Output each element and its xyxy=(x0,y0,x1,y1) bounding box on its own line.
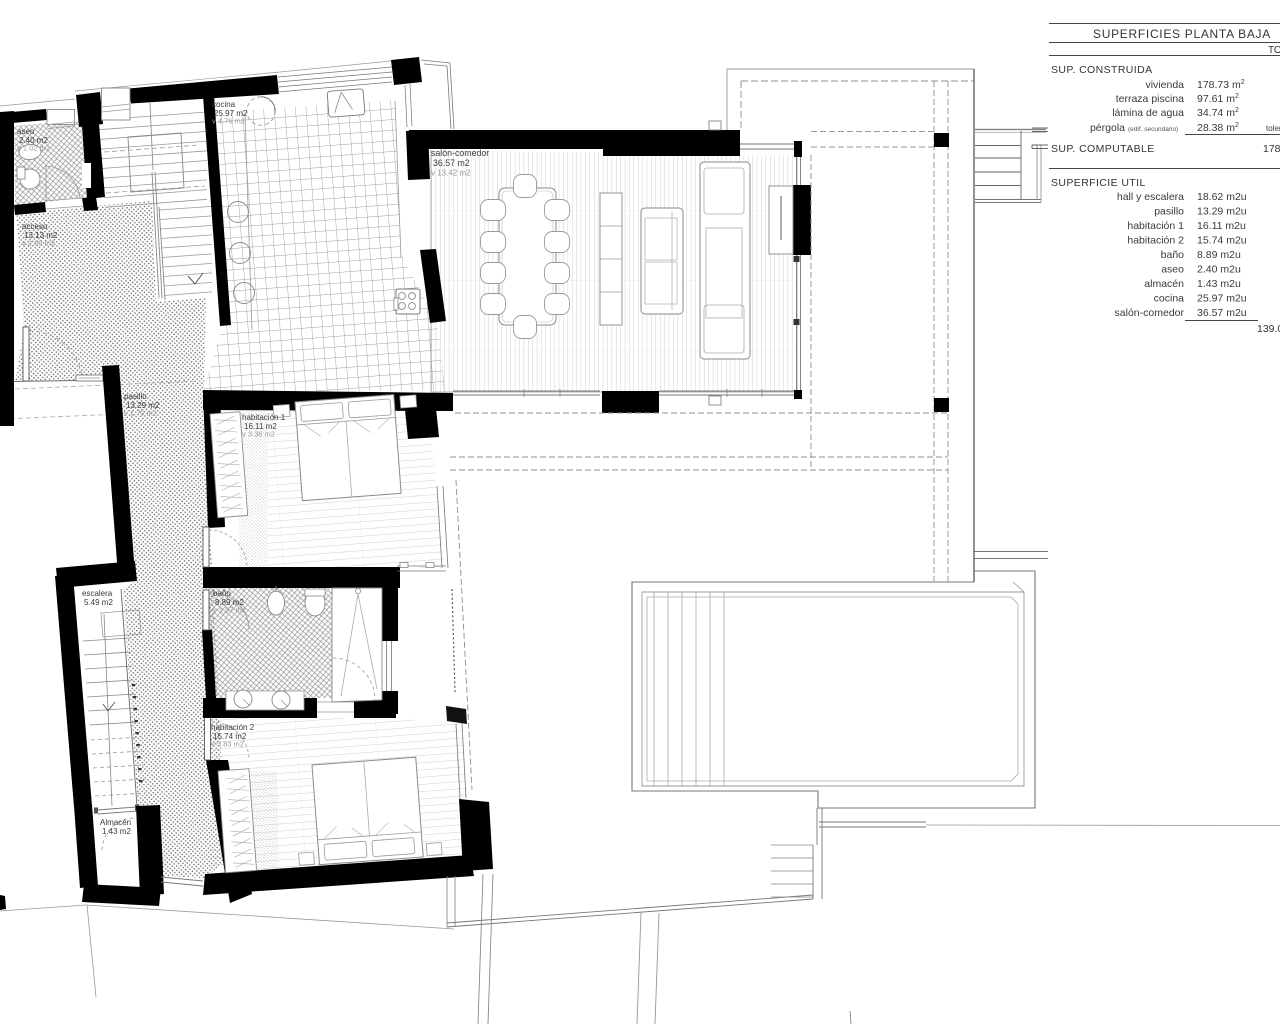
svg-text:178.73 m2: 178.73 m2 xyxy=(1197,79,1245,91)
svg-text:Almacén: Almacén xyxy=(100,818,131,827)
svg-text:salón-comedor: salón-comedor xyxy=(431,148,489,158)
svg-text:pérgola: pérgola xyxy=(1090,122,1125,134)
svg-text:v 13.42 m2: v 13.42 m2 xyxy=(431,169,471,178)
svg-text:salón-comedor: salón-comedor xyxy=(1115,307,1185,319)
svg-text:(edif. secundario): (edif. secundario) xyxy=(1128,126,1178,133)
svg-text:139.0: 139.0 xyxy=(1257,323,1280,335)
svg-text:28.38 m2: 28.38 m2 xyxy=(1197,122,1239,134)
svg-text:acceso: acceso xyxy=(22,222,48,231)
svg-text:pasillo: pasillo xyxy=(1154,206,1184,218)
svg-text:v 2.89 m2: v 2.89 m2 xyxy=(22,239,55,248)
svg-text:vivienda: vivienda xyxy=(1145,79,1184,91)
svg-text:34.74 m2: 34.74 m2 xyxy=(1197,107,1239,119)
svg-text:v 1.02 m2: v 1.02 m2 xyxy=(17,144,50,153)
svg-text:aseo: aseo xyxy=(1161,264,1184,276)
svg-text:97.61 m2: 97.61 m2 xyxy=(1197,93,1239,105)
svg-text:baño: baño xyxy=(1161,249,1185,261)
svg-text:25.97 m2u: 25.97 m2u xyxy=(1197,293,1247,305)
svg-text:habitación 1: habitación 1 xyxy=(242,413,286,422)
svg-text:pasillo: pasillo xyxy=(124,392,147,401)
svg-text:terraza piscina: terraza piscina xyxy=(1116,93,1184,105)
svg-text:habitación 1: habitación 1 xyxy=(1127,220,1184,232)
svg-text:SUP. CONSTRUIDA: SUP. CONSTRUIDA xyxy=(1051,64,1153,76)
svg-text:toler: toler xyxy=(1266,124,1280,133)
svg-text:v 1.70 m2: v 1.70 m2 xyxy=(124,409,157,418)
svg-text:v 3.36 m2: v 3.36 m2 xyxy=(242,430,275,439)
svg-text:SUPERFICIES PLANTA BAJA: SUPERFICIES PLANTA BAJA xyxy=(1093,27,1271,41)
svg-text:v 1.57 m2: v 1.57 m2 xyxy=(213,606,246,615)
svg-text:v 4.76 m2: v 4.76 m2 xyxy=(212,117,245,126)
svg-text:36.57 m2: 36.57 m2 xyxy=(433,158,470,168)
svg-text:hall y escalera: hall y escalera xyxy=(1117,191,1184,203)
svg-text:cocina: cocina xyxy=(1154,293,1185,305)
svg-text:18.62 m2u: 18.62 m2u xyxy=(1197,191,1247,203)
svg-text:SUPERFICIE UTIL: SUPERFICIE UTIL xyxy=(1051,177,1146,189)
svg-text:escalera: escalera xyxy=(82,589,113,598)
svg-text:2.40 m2u: 2.40 m2u xyxy=(1197,264,1241,276)
svg-text:almacén: almacén xyxy=(1144,278,1184,290)
svg-text:5.49 m2: 5.49 m2 xyxy=(84,598,113,607)
svg-text:8.89 m2u: 8.89 m2u xyxy=(1197,249,1241,261)
svg-text:habitación 2: habitación 2 xyxy=(1127,235,1184,247)
svg-text:aseo: aseo xyxy=(17,127,35,136)
svg-text:SUP. COMPUTABLE: SUP. COMPUTABLE xyxy=(1051,143,1155,155)
svg-text:TOTAL: TOTAL xyxy=(1268,45,1280,56)
svg-text:16.11 m2u: 16.11 m2u xyxy=(1197,220,1246,232)
svg-text:13.29 m2u: 13.29 m2u xyxy=(1197,206,1247,218)
svg-text:15.74 m2u: 15.74 m2u xyxy=(1197,235,1247,247)
svg-text:36.57 m2u: 36.57 m2u xyxy=(1197,307,1247,319)
svg-text:v 3.83 m2: v 3.83 m2 xyxy=(211,740,244,749)
svg-text:178.7: 178.7 xyxy=(1263,143,1280,155)
svg-text:1.43 m2u: 1.43 m2u xyxy=(1197,278,1241,290)
svg-text:1.43 m2: 1.43 m2 xyxy=(102,827,131,836)
svg-text:cocina: cocina xyxy=(212,100,236,109)
svg-text:lámina de agua: lámina de agua xyxy=(1112,107,1184,119)
svg-text:habitación 2: habitación 2 xyxy=(211,723,255,732)
svg-text:baño: baño xyxy=(213,589,231,598)
